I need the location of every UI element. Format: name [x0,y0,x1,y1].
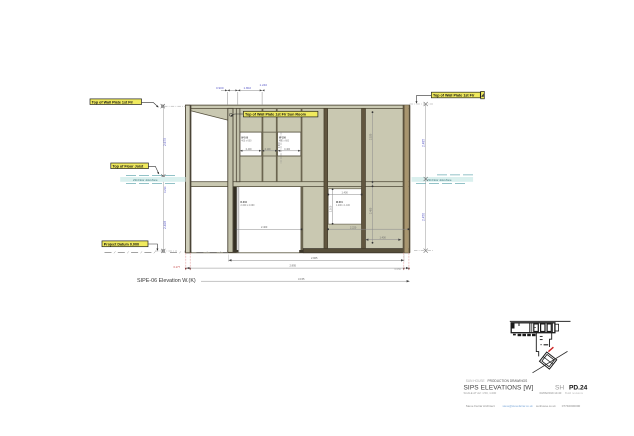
svg-text:2.180: 2.180 [370,133,373,140]
svg-text:2.400: 2.400 [261,226,268,229]
svg-text:2.450: 2.450 [421,213,425,221]
svg-text:Top of Wall Plate 1st Flr: Top of Wall Plate 1st Flr [92,100,134,104]
svg-text:2.485: 2.485 [421,139,425,147]
svg-text:0.900: 0.900 [216,86,224,90]
svg-text:2.400 x 2.090: 2.400 x 2.090 [241,205,256,207]
svg-text:0.400: 0.400 [284,149,290,151]
svg-text:400 x 600: 400 x 600 [241,141,252,143]
svg-text:0.177: 0.177 [174,265,181,269]
svg-text:2.905: 2.905 [311,256,318,260]
svg-text:W-108: W-108 [279,137,286,139]
svg-text:1.200 x 1.100: 1.200 x 1.100 [336,205,351,207]
svg-text:400 x 600: 400 x 600 [279,141,290,143]
svg-text:1.100: 1.100 [330,205,333,212]
svg-text:Build revisions: Build revisions [565,391,584,395]
svg-text:PRODUCTION DRAWINGS: PRODUCTION DRAWINGS [488,379,528,383]
svg-text:Steve Farrar Architect: Steve Farrar Architect [466,404,495,408]
svg-text:2.895: 2.895 [290,263,297,267]
svg-text:0.100: 0.100 [265,149,271,151]
svg-text:Top of Wall Plate 1st Flr: Top of Wall Plate 1st Flr [433,94,475,98]
svg-text:sunhouse.co.uk: sunhouse.co.uk [536,404,556,408]
svg-text:steve@stevefarrar.co.uk: steve@stevefarrar.co.uk [503,404,534,408]
svg-text:1.240: 1.240 [260,83,268,87]
svg-text:0.234: 0.234 [163,186,167,193]
svg-text:234 Floor Joist Zone: 234 Floor Joist Zone [427,178,452,182]
svg-text:W-106: W-106 [241,137,248,139]
svg-text:2.408: 2.408 [163,221,167,229]
svg-text:D-004: D-004 [241,201,248,204]
svg-text:1.400: 1.400 [380,236,387,239]
svg-text:W-001: W-001 [336,202,343,204]
svg-text:1.400: 1.400 [342,191,349,194]
svg-text:2.220: 2.220 [350,227,357,230]
svg-text:1.802: 1.802 [244,86,252,90]
svg-text:Project Datum 0.000: Project Datum 0.000 [104,242,139,246]
svg-text:2.450: 2.450 [370,207,373,214]
svg-text:Top of Wall Plate 1st Flr Sun: Top of Wall Plate 1st Flr Sun Room [245,113,307,117]
svg-text:2.675: 2.675 [163,138,167,146]
svg-text:234 Floor Joist Zone: 234 Floor Joist Zone [133,178,158,182]
svg-text:0.600: 0.600 [279,142,281,148]
svg-text:0.400: 0.400 [246,149,252,151]
svg-text:0.050: 0.050 [395,267,402,271]
svg-text:SUN HOUSE: SUN HOUSE [466,379,485,383]
svg-text:SIPE-06 Elevation W.(K): SIPE-06 Elevation W.(K) [137,278,196,284]
svg-text:3.155: 3.155 [298,277,305,281]
svg-text:03/06/2019 14:40: 03/06/2019 14:40 [540,391,562,395]
svg-text:SCALE AT A2: 1:50, 1:200: SCALE AT A2: 1:50, 1:200 [464,391,497,395]
svg-text:Top of Floor Joist: Top of Floor Joist [112,164,144,168]
svg-text:07740000000: 07740000000 [562,404,581,408]
